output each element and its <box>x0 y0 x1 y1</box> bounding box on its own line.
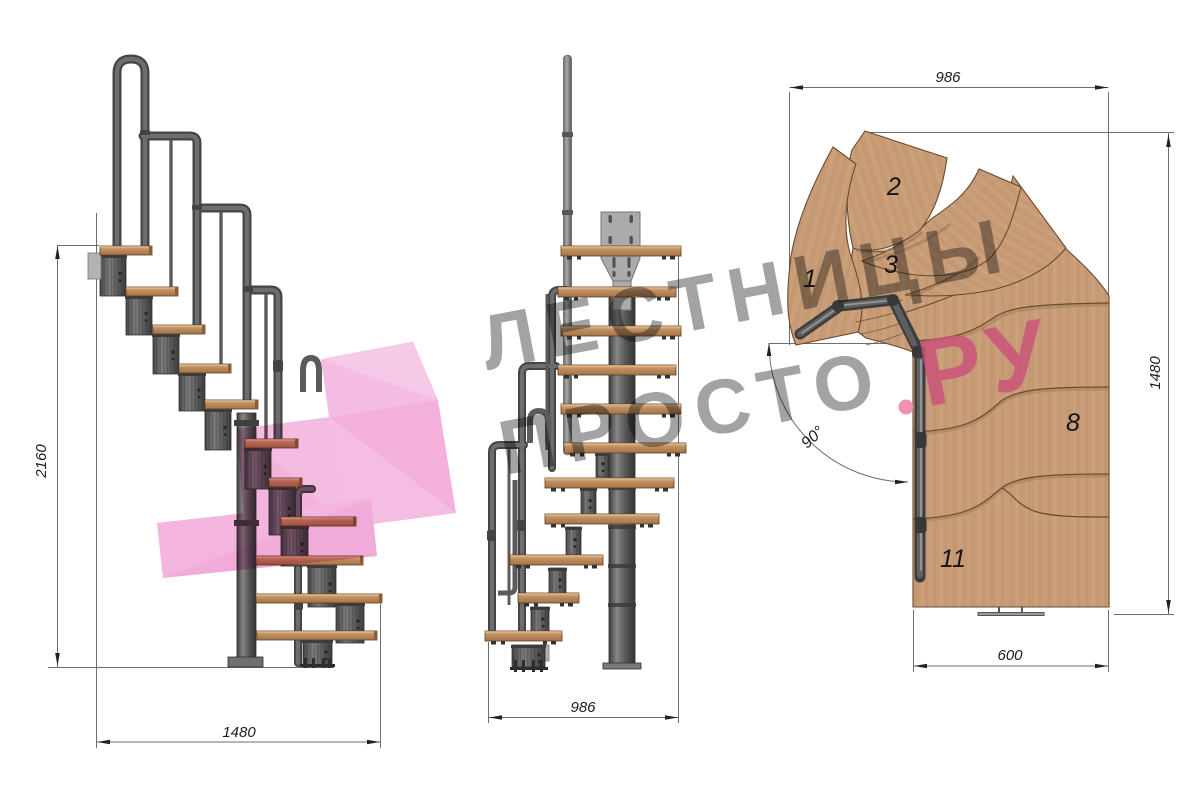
svg-text:РУ: РУ <box>910 298 1063 427</box>
